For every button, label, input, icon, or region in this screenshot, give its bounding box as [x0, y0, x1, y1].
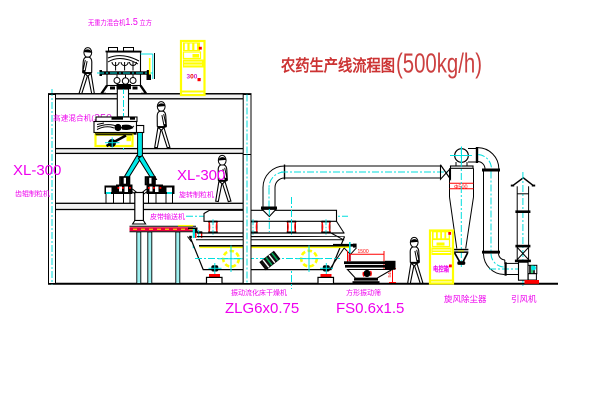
svg-text:电控箱: 电控箱	[433, 264, 449, 274]
svg-text:Φ500: Φ500	[454, 184, 468, 190]
svg-text:振动流化床干燥机: 振动流化床干燥机	[231, 288, 287, 297]
svg-text:XL-300: XL-300	[177, 167, 225, 184]
svg-text:ZLG6x0.75: ZLG6x0.75	[225, 300, 299, 317]
svg-text:高速混合机(: 高速混合机(	[53, 113, 95, 123]
svg-text:(500kg/h): (500kg/h)	[396, 48, 482, 79]
svg-text:农药生产线流程图: 农药生产线流程图	[280, 56, 395, 75]
svg-text:旋转制粒机: 旋转制粒机	[179, 190, 214, 199]
svg-text:齿辊制粒机: 齿辊制粒机	[15, 189, 50, 198]
svg-text:300: 300	[187, 74, 198, 81]
svg-text:皮带输送机: 皮带输送机	[150, 212, 185, 221]
svg-text:无重力混合机1.5 立方: 无重力混合机1.5 立方	[88, 17, 152, 28]
svg-text:旋风除尘器: 旋风除尘器	[444, 294, 487, 304]
svg-text:1500: 1500	[358, 249, 369, 255]
svg-text:XL-300: XL-300	[13, 162, 61, 179]
svg-text:FS0.6x1.5: FS0.6x1.5	[336, 300, 404, 317]
svg-text:引风机: 引风机	[511, 294, 537, 304]
svg-text:方形振动筛: 方形振动筛	[346, 288, 381, 297]
